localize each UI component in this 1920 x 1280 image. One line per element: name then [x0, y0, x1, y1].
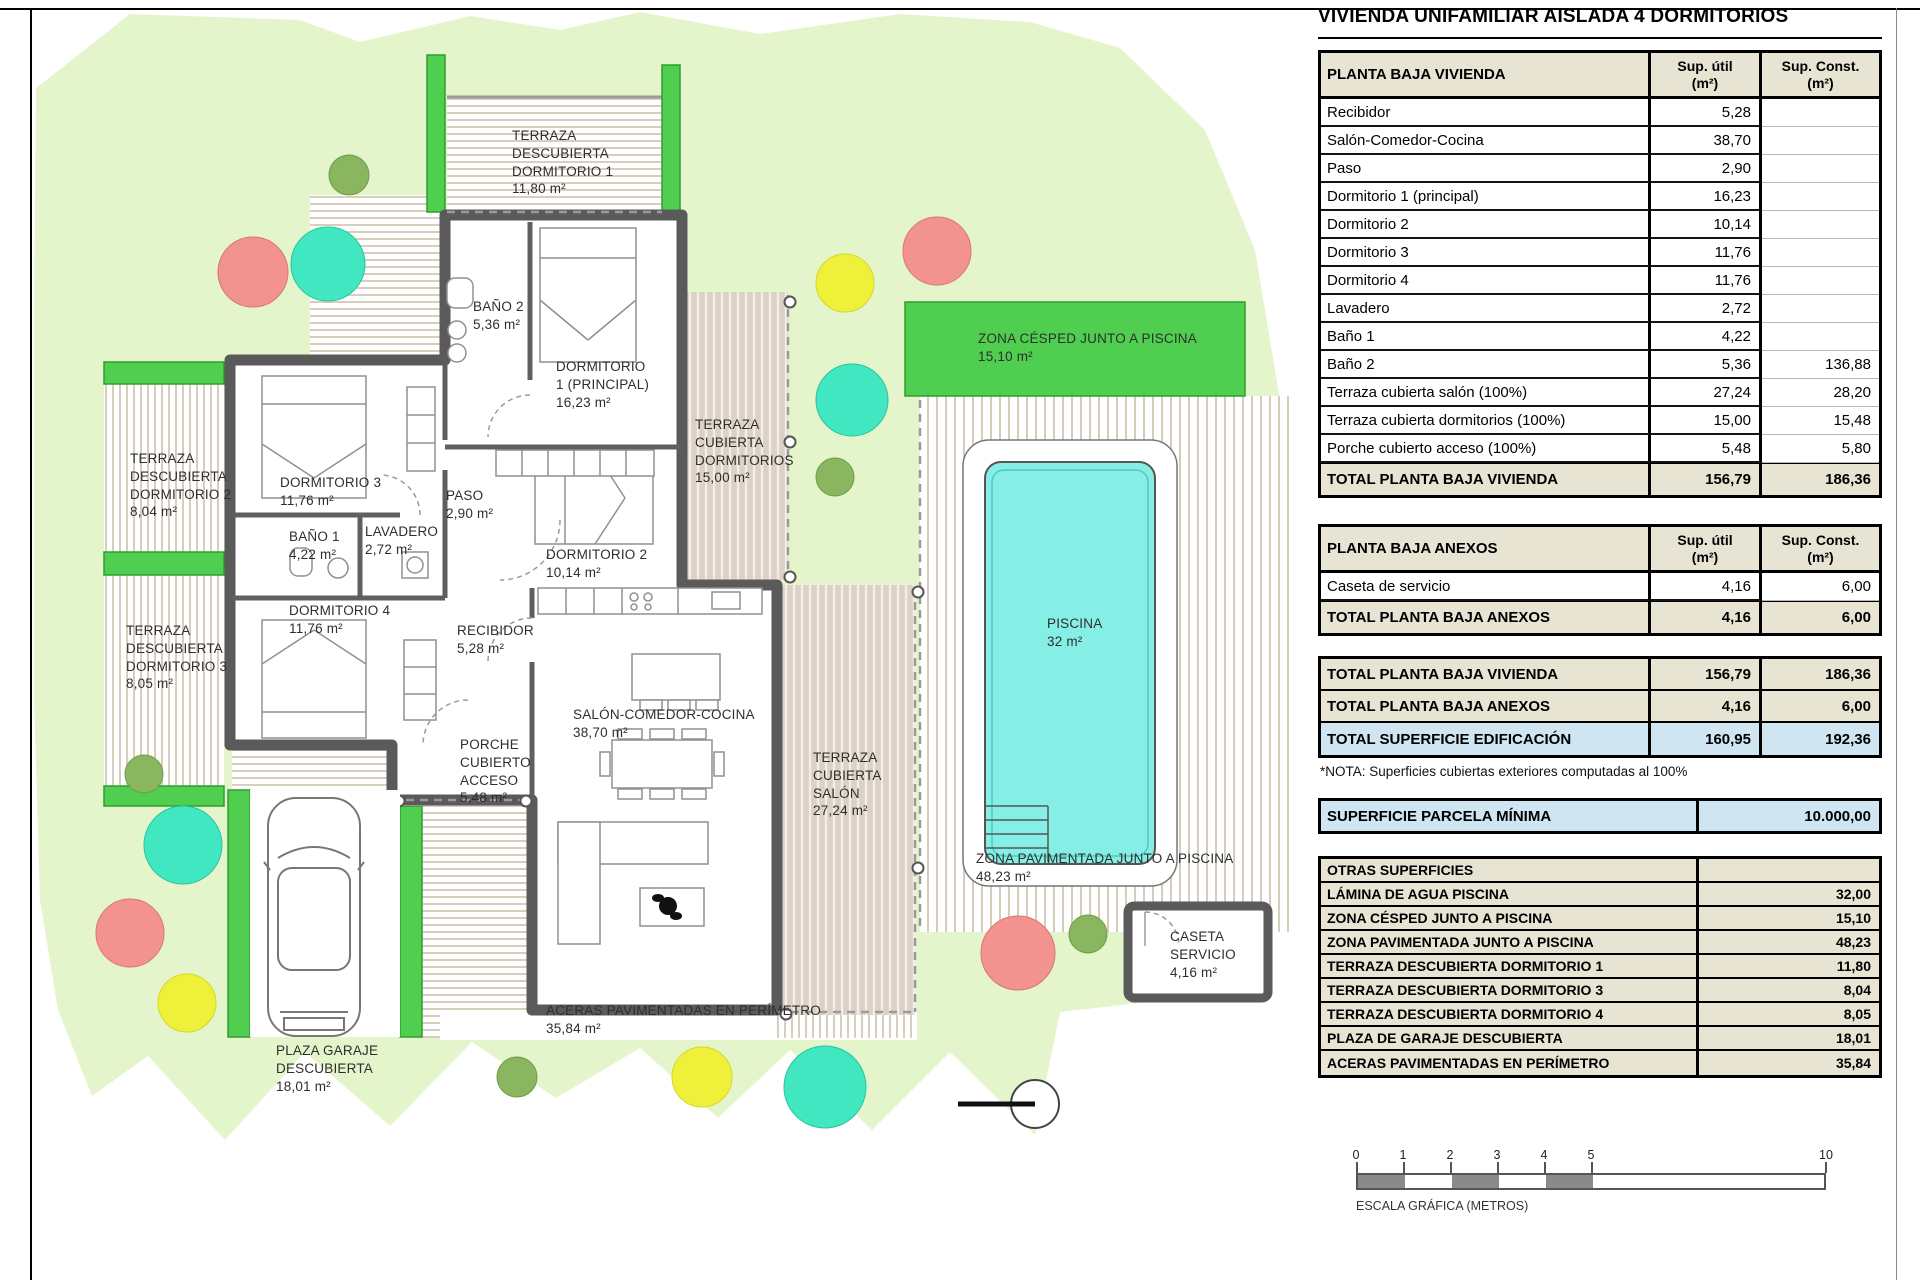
table-row: Baño 25,36136,88 [1321, 351, 1879, 379]
table-row: Caseta de servicio4,166,00 [1321, 573, 1879, 601]
table-row: Lavadero2,72 [1321, 295, 1879, 323]
architectural-plan-sheet: { "title": "VIVIENDA UNIFAMILIAR AISLADA… [0, 0, 1920, 1280]
label-terraza-cub-salon: TERRAZA CUBIERTA SALÓN 27,24 m² [813, 749, 882, 820]
scale-tick-label: 4 [1529, 1148, 1559, 1162]
table-row: Terraza cubierta salón (100%)27,2428,20 [1321, 379, 1879, 407]
table-row: Recibidor5,28 [1321, 99, 1879, 127]
label-zona-pav: ZONA PAVIMENTADA JUNTO A PISCINA 48,23 m… [976, 850, 1233, 886]
label-garaje: PLAZA GARAJE DESCUBIERTA 18,01 m² [276, 1042, 378, 1095]
header-label: PLANTA BAJA VIVIENDA [1321, 53, 1651, 99]
label-salon: SALÓN-COMEDOR-COCINA 38,70 m² [573, 706, 755, 742]
table-header: PLANTA BAJA VIVIENDA Sup. útil (m²) Sup.… [1321, 53, 1879, 99]
scale-tick-label: 10 [1811, 1148, 1841, 1162]
label-dorm3: DORMITORIO 3 11,76 m² [280, 474, 381, 510]
scale-tick-label: 3 [1482, 1148, 1512, 1162]
table-row: LÁMINA DE AGUA PISCINA32,00 [1321, 883, 1879, 907]
scale-tick-label: 1 [1388, 1148, 1418, 1162]
table-row: ACERAS PAVIMENTADAS EN PERÍMETRO35,84 [1321, 1051, 1879, 1075]
label-bano1: BAÑO 1 4,22 m² [289, 528, 340, 564]
nota-text: *NOTA: Superficies cubiertas exteriores … [1320, 764, 1687, 779]
label-terraza-cub-dorms: TERRAZA CUBIERTA DORMITORIOS 15,00 m² [695, 416, 794, 487]
table-row: SUPERFICIE PARCELA MÍNIMA 10.000,00 [1321, 801, 1879, 831]
table-row: Paso2,90 [1321, 155, 1879, 183]
label-dorm4: DORMITORIO 4 11,76 m² [289, 602, 390, 638]
table-row: Terraza cubierta dormitorios (100%)15,00… [1321, 407, 1879, 435]
label-terraza-dorm1: TERRAZA DESCUBIERTA DORMITORIO 1 11,80 m… [512, 127, 613, 198]
table-row-total-superficie: TOTAL SUPERFICIE EDIFICACIÓN160,95192,36 [1321, 723, 1879, 755]
table-row: Baño 14,22 [1321, 323, 1879, 351]
sidewalk-east-of-garage [422, 806, 532, 1038]
kitchen-counter [538, 588, 762, 614]
scale-tick-label: 0 [1341, 1148, 1371, 1162]
header-sup-const: Sup. Const. (m²) [1762, 53, 1879, 99]
table-totales: TOTAL PLANTA BAJA VIVIENDA156,79186,36 T… [1318, 656, 1882, 758]
garage [250, 790, 400, 1037]
table-header: OTRAS SUPERFICIES [1321, 859, 1879, 883]
table-row: TERRAZA DESCUBIERTA DORMITORIO 38,04 [1321, 979, 1879, 1003]
label-dorm2: DORMITORIO 2 10,14 m² [546, 546, 647, 582]
label-aceras: ACERAS PAVIMENTADAS EN PERÍMETRO 35,84 m… [546, 1002, 821, 1038]
label-caseta: CASETA SERVICIO 4,16 m² [1170, 928, 1236, 981]
label-terraza-dorm2: TERRAZA DESCUBIERTA DORMITORIO 2 8,04 m² [130, 450, 231, 521]
kitchen-island [632, 654, 720, 710]
table-planta-baja-vivienda: PLANTA BAJA VIVIENDA Sup. útil (m²) Sup.… [1318, 50, 1882, 498]
pool [963, 440, 1177, 886]
label-piscina: PISCINA 32 m² [1047, 615, 1102, 651]
table-total-row: TOTAL PLANTA BAJA ANEXOS4,166,00 [1321, 601, 1879, 633]
label-recibidor: RECIBIDOR 5,28 m² [457, 622, 534, 658]
label-bano2: BAÑO 2 5,36 m² [473, 298, 524, 334]
table-row: PLAZA DE GARAJE DESCUBIERTA18,01 [1321, 1027, 1879, 1051]
table-row: Dormitorio 1 (principal)16,23 [1321, 183, 1879, 211]
label-paso: PASO 2,90 m² [446, 487, 493, 523]
header-sup-util: Sup. útil (m²) [1651, 53, 1762, 99]
table-row: TOTAL PLANTA BAJA VIVIENDA156,79186,36 [1321, 659, 1879, 691]
page-border-right [1896, 8, 1897, 1280]
label-porche: PORCHE CUBIERTO ACCESO 5,48 m² [460, 736, 531, 807]
scale-bar-graphic [1356, 1173, 1826, 1190]
scale-tick-label: 2 [1435, 1148, 1465, 1162]
table-total-row: TOTAL PLANTA BAJA VIVIENDA156,79186,36 [1321, 463, 1879, 495]
bed-dorm4 [262, 620, 366, 738]
table-row: TOTAL PLANTA BAJA ANEXOS4,166,00 [1321, 691, 1879, 723]
table-parcela-minima: SUPERFICIE PARCELA MÍNIMA 10.000,00 [1318, 798, 1882, 834]
label-cesped: ZONA CÉSPED JUNTO A PISCINA 15,10 m² [978, 330, 1197, 366]
table-row: TERRAZA DESCUBIERTA DORMITORIO 48,05 [1321, 1003, 1879, 1027]
scale-tick-label: 5 [1576, 1148, 1606, 1162]
table-row: Dormitorio 210,14 [1321, 211, 1879, 239]
table-row: TERRAZA DESCUBIERTA DORMITORIO 111,80 [1321, 955, 1879, 979]
label-dorm1: DORMITORIO 1 (PRINCIPAL) 16,23 m² [556, 358, 649, 411]
sidewalk-above-garage [232, 748, 398, 790]
table-header: PLANTA BAJA ANEXOS Sup. útil (m²) Sup. C… [1321, 527, 1879, 573]
table-row: Dormitorio 311,76 [1321, 239, 1879, 267]
table-row: Salón-Comedor-Cocina38,70 [1321, 127, 1879, 155]
table-planta-baja-anexos: PLANTA BAJA ANEXOS Sup. útil (m²) Sup. C… [1318, 524, 1882, 636]
table-row: ZONA CÉSPED JUNTO A PISCINA15,10 [1321, 907, 1879, 931]
table-otras-superficies: OTRAS SUPERFICIES LÁMINA DE AGUA PISCINA… [1318, 856, 1882, 1078]
table-row: Dormitorio 411,76 [1321, 267, 1879, 295]
label-lavadero: LAVADERO 2,72 m² [365, 523, 438, 559]
scale-bar-caption: ESCALA GRÁFICA (METROS) [1356, 1199, 1528, 1213]
table-row: Porche cubierto acceso (100%)5,485,80 [1321, 435, 1879, 463]
bed-dorm1 [540, 228, 636, 362]
label-terraza-dorm3: TERRAZA DESCUBIERTA DORMITORIO 3 8,05 m² [126, 622, 227, 693]
car [264, 798, 364, 1036]
table-row: ZONA PAVIMENTADA JUNTO A PISCINA48,23 [1321, 931, 1879, 955]
sheet-title: VIVIENDA UNIFAMILIAR AISLADA 4 DORMITORI… [1318, 6, 1882, 39]
